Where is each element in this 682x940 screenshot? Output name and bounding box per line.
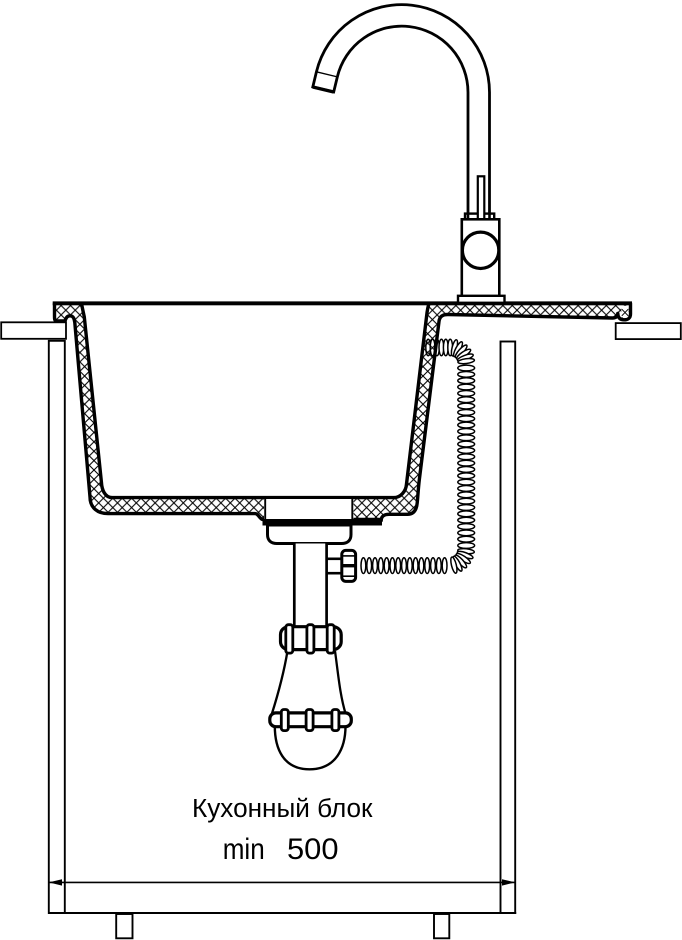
svg-text:min: min xyxy=(223,833,265,866)
svg-text:500: 500 xyxy=(287,833,339,866)
svg-text:Кухонный блок: Кухонный блок xyxy=(192,795,373,823)
